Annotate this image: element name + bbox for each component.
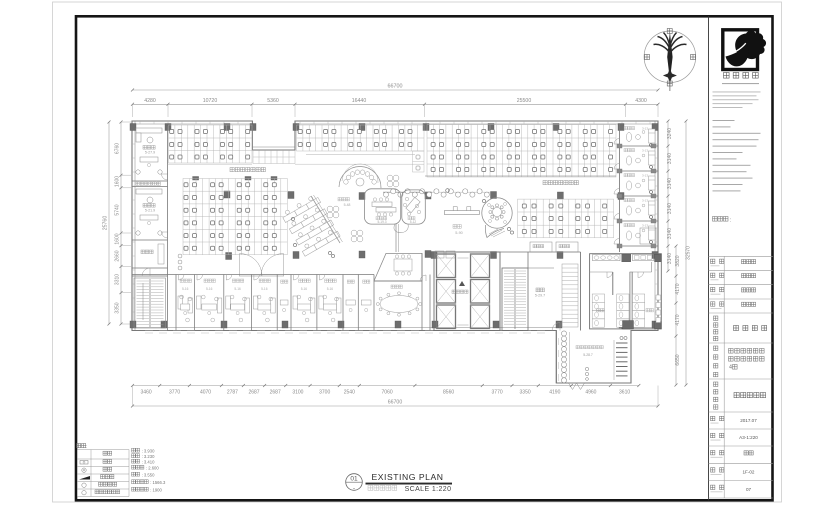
svg-text:3460: 3460 xyxy=(141,390,152,396)
svg-text:3140: 3140 xyxy=(667,153,673,164)
svg-text:5-16: 5-16 xyxy=(234,287,241,291)
svg-text:: 2.600: : 2.600 xyxy=(146,465,159,470)
svg-text:2787: 2787 xyxy=(227,390,238,396)
svg-text:4960: 4960 xyxy=(585,390,596,396)
svg-text:4300: 4300 xyxy=(635,98,647,104)
svg-text:2687: 2687 xyxy=(248,390,259,396)
svg-text:5-27.9: 5-27.9 xyxy=(145,151,155,155)
svg-text:3770: 3770 xyxy=(492,390,503,396)
svg-text:25760: 25760 xyxy=(103,216,109,231)
svg-text:3100: 3100 xyxy=(292,390,303,396)
svg-text:5360: 5360 xyxy=(267,98,279,104)
svg-text:66700: 66700 xyxy=(388,400,403,406)
svg-text:5-29.7: 5-29.7 xyxy=(535,294,545,298)
svg-text:3820: 3820 xyxy=(675,255,681,266)
svg-text:5-21.9: 5-21.9 xyxy=(145,209,155,213)
svg-text:: 3.410: : 3.410 xyxy=(142,459,155,464)
svg-text:: 1900: : 1900 xyxy=(150,487,162,492)
svg-text:4280: 4280 xyxy=(144,98,156,104)
svg-text:2017.07: 2017.07 xyxy=(740,418,757,423)
svg-text:SCALE 1:220: SCALE 1:220 xyxy=(405,486,452,493)
svg-text:3-13: 3-13 xyxy=(642,149,648,153)
svg-text:1F-02: 1F-02 xyxy=(742,470,754,475)
svg-text:5-16: 5-16 xyxy=(182,287,189,291)
svg-text:10720: 10720 xyxy=(203,98,218,104)
svg-text::: : xyxy=(730,218,731,224)
svg-text:3-13: 3-13 xyxy=(642,174,648,178)
svg-text:5740: 5740 xyxy=(115,204,121,215)
svg-text:5-28.7: 5-28.7 xyxy=(583,353,593,357)
svg-text:01: 01 xyxy=(350,476,358,483)
svg-text:16440: 16440 xyxy=(352,98,367,104)
svg-text:3140: 3140 xyxy=(667,203,673,214)
svg-text:4170: 4170 xyxy=(675,314,681,325)
svg-text:8560: 8560 xyxy=(443,390,454,396)
svg-text:3-13: 3-13 xyxy=(642,127,648,131)
svg-text:3-13: 3-13 xyxy=(642,199,648,203)
svg-text:3140: 3140 xyxy=(667,178,673,189)
svg-text:1600: 1600 xyxy=(115,176,121,187)
svg-text:3350: 3350 xyxy=(520,390,531,396)
svg-text:5-48: 5-48 xyxy=(344,203,351,207)
svg-text:5-16: 5-16 xyxy=(327,287,334,291)
svg-text:3-13: 3-13 xyxy=(642,224,648,228)
svg-text:EXISTING PLAN: EXISTING PLAN xyxy=(371,472,443,482)
svg-text:3610: 3610 xyxy=(619,390,630,396)
svg-text:3700: 3700 xyxy=(319,390,330,396)
svg-text:5-16: 5-16 xyxy=(301,287,308,291)
svg-text:6760: 6760 xyxy=(115,143,121,154)
svg-text:: 3.550: : 3.550 xyxy=(142,472,155,477)
svg-text:5-16: 5-16 xyxy=(206,287,213,291)
svg-text:5-19.3: 5-19.3 xyxy=(377,220,386,224)
svg-text:5-16: 5-16 xyxy=(261,287,268,291)
svg-text:5-90: 5-90 xyxy=(455,231,463,235)
svg-text:1600: 1600 xyxy=(115,233,121,244)
svg-text:2687: 2687 xyxy=(270,390,281,396)
svg-text:: 3.930: : 3.930 xyxy=(142,448,155,453)
svg-text:3140: 3140 xyxy=(667,253,673,264)
svg-text:3350: 3350 xyxy=(115,302,121,313)
svg-text:25500: 25500 xyxy=(517,98,532,104)
svg-text:3240: 3240 xyxy=(667,128,673,139)
svg-text:32570: 32570 xyxy=(686,246,692,260)
svg-text:4: 4 xyxy=(729,365,732,371)
svg-text:3310: 3310 xyxy=(115,274,121,285)
svg-text:5-12: 5-12 xyxy=(410,220,417,224)
svg-text:2660: 2660 xyxy=(115,250,121,261)
svg-text:07: 07 xyxy=(746,487,752,492)
svg-text:: 1566.3: : 1566.3 xyxy=(150,480,166,485)
svg-text:: 3.230: : 3.230 xyxy=(142,454,155,459)
svg-text:3770: 3770 xyxy=(169,390,180,396)
svg-text:2540: 2540 xyxy=(344,390,355,396)
svg-text::: : xyxy=(86,444,87,449)
svg-text:-: - xyxy=(353,486,355,492)
svg-text:66700: 66700 xyxy=(388,84,403,90)
svg-text:4190: 4190 xyxy=(549,390,560,396)
svg-text:7060: 7060 xyxy=(382,390,393,396)
svg-text:A3-1:220: A3-1:220 xyxy=(739,435,758,440)
svg-text:6650: 6650 xyxy=(675,354,681,365)
svg-text:4070: 4070 xyxy=(200,390,211,396)
svg-text:4170: 4170 xyxy=(675,283,681,294)
svg-text:3140: 3140 xyxy=(667,228,673,239)
